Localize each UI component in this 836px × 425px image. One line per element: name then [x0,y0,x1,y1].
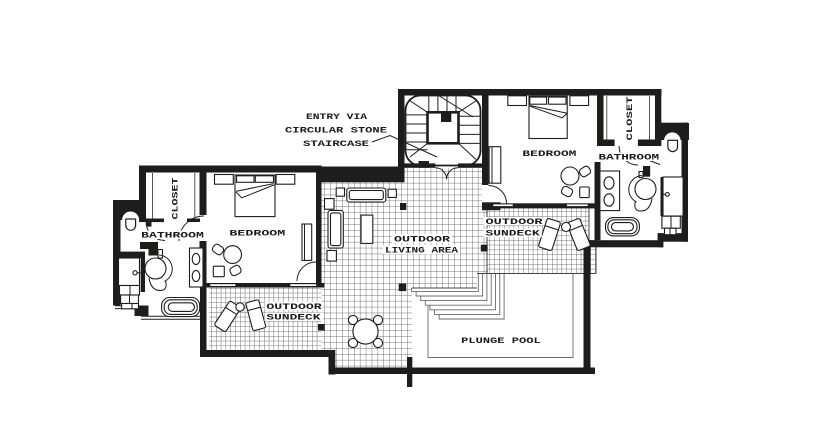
svg-text:OUTDOOR: OUTDOOR [266,303,322,312]
svg-text:CLOSET: CLOSET [171,177,180,219]
svg-text:SUNDECK: SUNDECK [266,313,320,322]
svg-text:BEDROOM: BEDROOM [522,150,576,159]
svg-text:LIVING AREA: LIVING AREA [385,247,458,256]
svg-text:PLUNGE POOL: PLUNGE POOL [461,337,541,346]
svg-text:STAIRCASE: STAIRCASE [303,140,369,149]
svg-text:BATHROOM: BATHROOM [141,232,204,241]
svg-text:OUTDOOR: OUTDOOR [486,218,543,227]
svg-text:OUTDOOR: OUTDOOR [394,236,450,245]
svg-text:ENTRY VIA: ENTRY VIA [306,113,367,122]
svg-text:CLOSET: CLOSET [626,96,635,140]
svg-text:BEDROOM: BEDROOM [229,230,285,239]
svg-text:SUNDECK: SUNDECK [486,230,541,239]
svg-text:CIRCULAR STONE: CIRCULAR STONE [285,127,387,136]
svg-text:BATHROOM: BATHROOM [599,154,660,163]
